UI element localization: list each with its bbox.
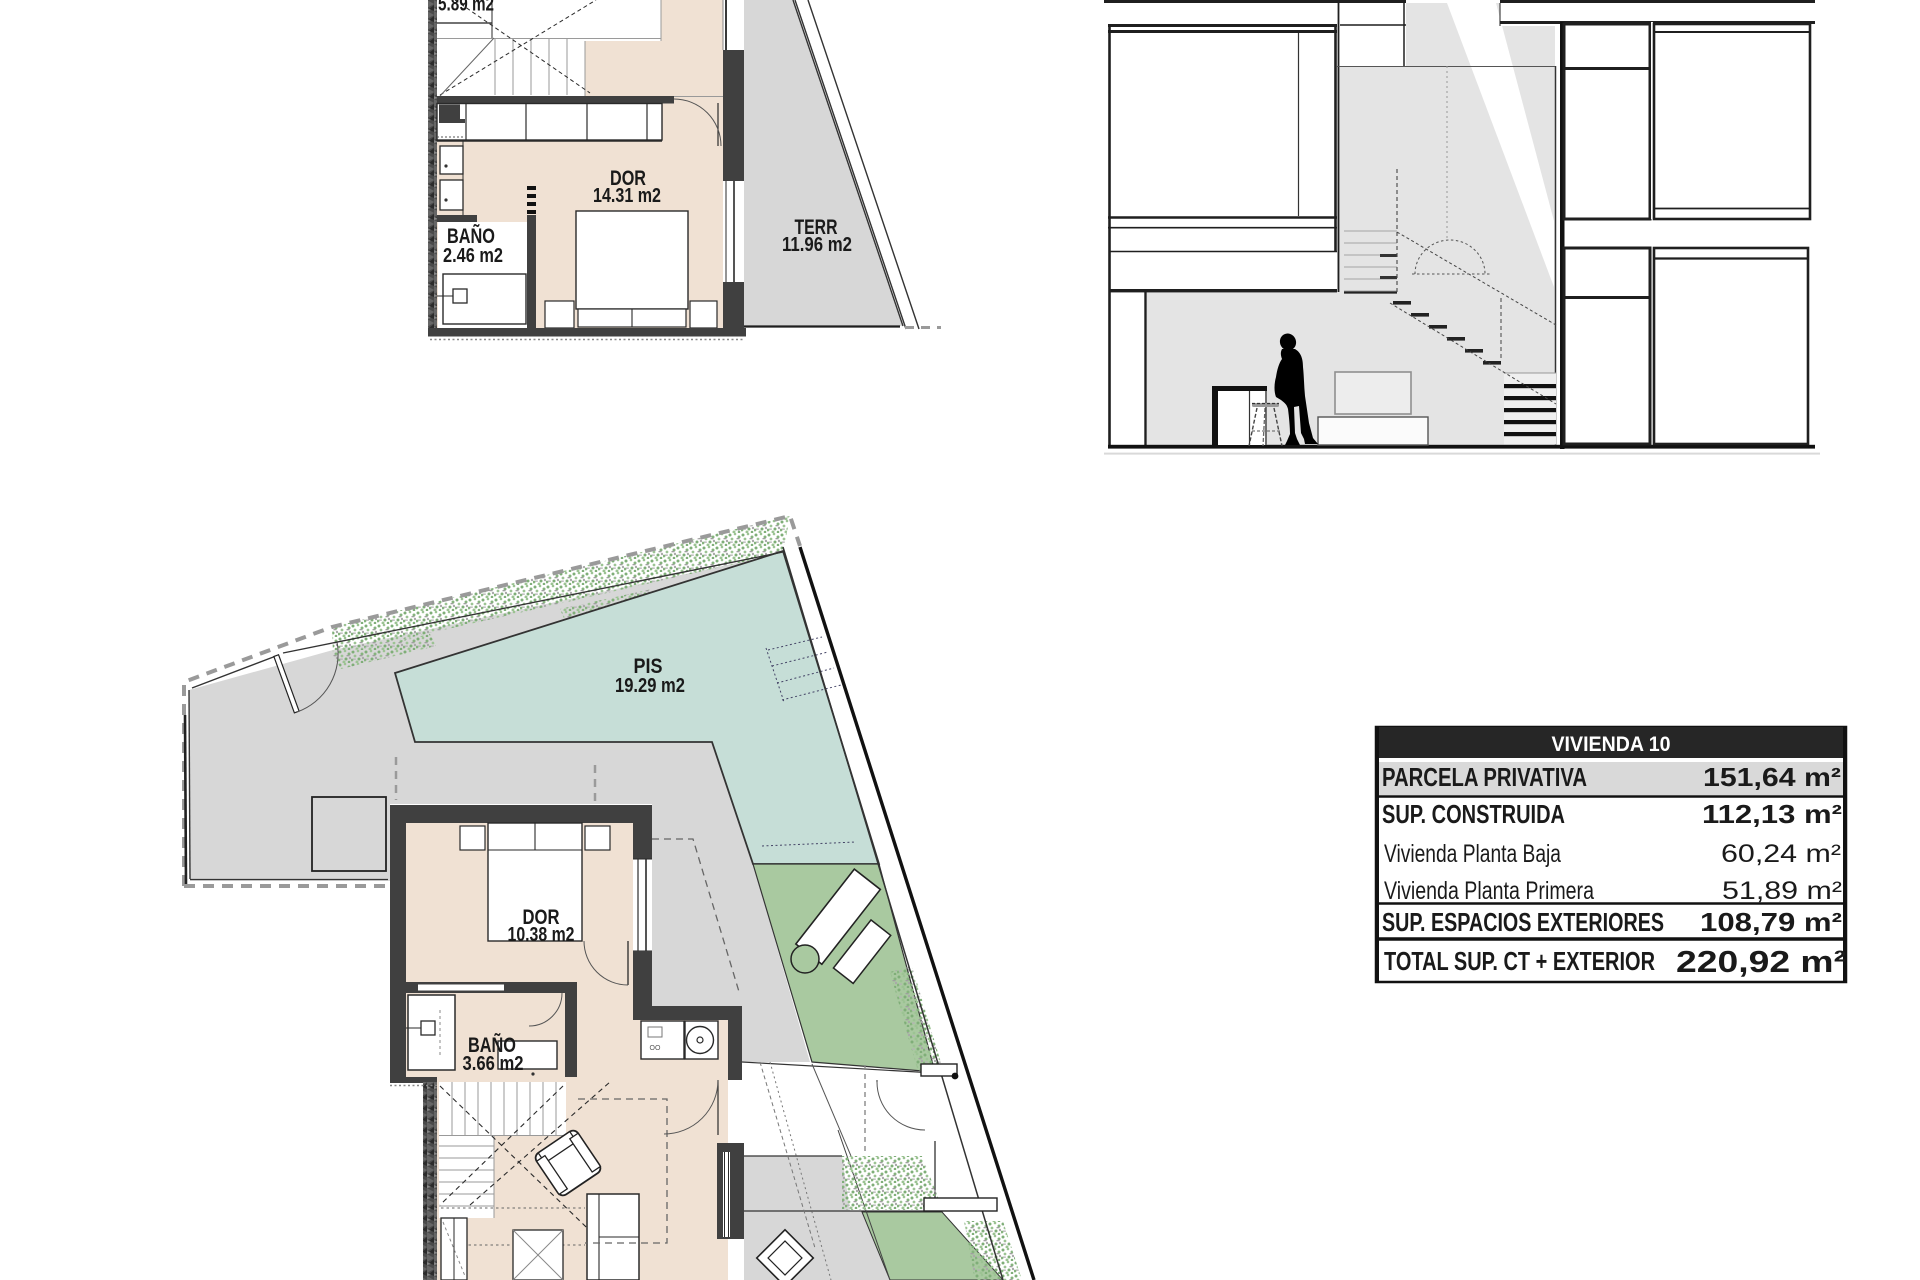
svg-text:14.31 m2: 14.31 m2 <box>593 185 661 207</box>
svg-text:Vivienda Planta Baja: Vivienda Planta Baja <box>1384 840 1561 868</box>
svg-text:2.46 m2: 2.46 m2 <box>443 245 503 267</box>
svg-text:Vivienda Planta Primera: Vivienda Planta Primera <box>1384 877 1594 905</box>
svg-text:151,64 m²: 151,64 m² <box>1703 762 1841 792</box>
svg-text:19.29 m2: 19.29 m2 <box>615 675 685 697</box>
svg-text:60,24 m²: 60,24 m² <box>1721 840 1841 868</box>
svg-text:108,79 m²: 108,79 m² <box>1700 907 1842 937</box>
svg-text:PARCELA PRIVATIVA: PARCELA PRIVATIVA <box>1382 762 1587 792</box>
svg-text:TOTAL SUP. CT + EXTERIOR: TOTAL SUP. CT + EXTERIOR <box>1384 946 1655 976</box>
svg-text:10.38 m2: 10.38 m2 <box>508 924 575 946</box>
svg-text:5.89 m2: 5.89 m2 <box>438 0 494 16</box>
svg-text:SUP. CONSTRUIDA: SUP. CONSTRUIDA <box>1382 799 1565 829</box>
svg-text:3.66 m2: 3.66 m2 <box>463 1053 524 1075</box>
svg-text:112,13 m²: 112,13 m² <box>1702 799 1842 829</box>
svg-text:11.96 m2: 11.96 m2 <box>782 234 852 256</box>
svg-text:220,92 m²: 220,92 m² <box>1676 944 1846 979</box>
svg-text:OO: OO <box>650 1045 661 1052</box>
svg-text:SUP. ESPACIOS EXTERIORES: SUP. ESPACIOS EXTERIORES <box>1382 907 1664 937</box>
svg-text:51,89 m²: 51,89 m² <box>1722 877 1842 905</box>
svg-text:VIVIENDA 10: VIVIENDA 10 <box>1552 733 1671 756</box>
